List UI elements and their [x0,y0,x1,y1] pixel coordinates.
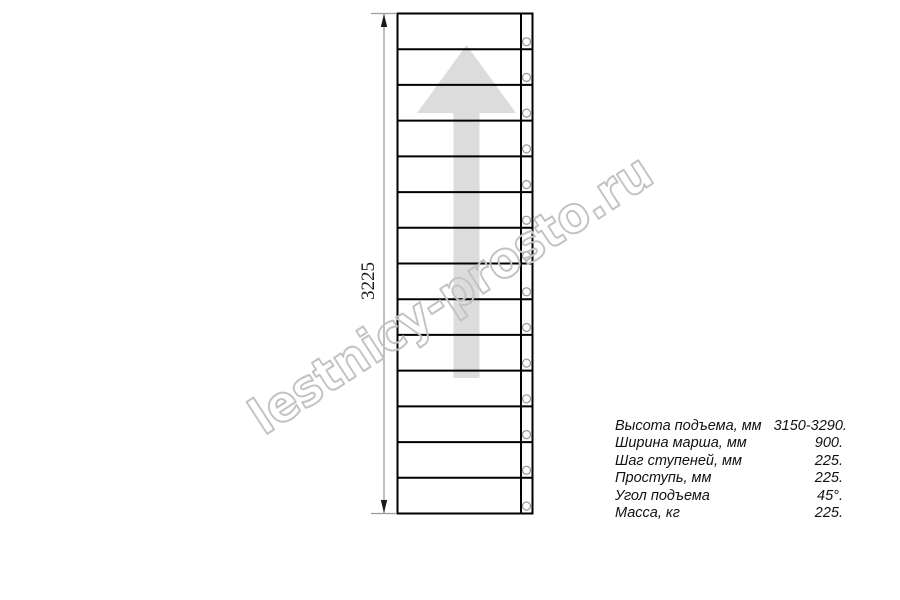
bolt-circle [523,359,531,367]
bolt-circle [523,288,531,296]
bolt-circle [523,73,531,81]
dimension: 3225 [358,14,397,514]
bolt-circle [523,502,531,510]
bolt-circle [523,431,531,439]
spec-value: 3150-3290. [774,418,847,435]
spec-value: 225. [815,453,843,470]
dimension-arrowhead-top [381,14,387,27]
spec-label: Шаг ступеней, мм [615,453,742,470]
spec-row-width: Ширина марша, мм 900. [615,435,843,452]
spec-value: 45°. [817,488,843,505]
bolt-circle [523,395,531,403]
drawing-canvas: 3225 lestnicy-prosto.ru Высота подъема, … [0,0,900,600]
bolt-circle [523,323,531,331]
dimension-label: 3225 [358,262,379,300]
spec-label: Угол подъема [615,488,710,505]
spec-value: 900. [815,435,843,452]
bolt-circle [523,38,531,46]
spec-row-tread: Проступь, мм 225. [615,470,843,487]
bolt-circle [523,466,531,474]
bolt-circle [523,181,531,189]
spec-row-angle: Угол подъема 45°. [615,488,843,505]
dimension-arrowhead-bottom [381,500,387,513]
spec-label: Масса, кг [615,505,680,522]
watermark-text: lestnicy-prosto.ru [239,143,663,447]
bolt-circle [523,145,531,153]
spec-row-height: Высота подъема, мм 3150-3290. [615,418,843,435]
spec-label: Проступь, мм [615,470,711,487]
spec-label: Высота подъема, мм [615,418,762,435]
spec-row-step: Шаг ступеней, мм 225. [615,453,843,470]
specs-table: Высота подъема, мм 3150-3290. Ширина мар… [615,418,843,522]
spec-value: 225. [815,505,843,522]
spec-value: 225. [815,470,843,487]
bolt-circle [523,109,531,117]
spec-row-mass: Масса, кг 225. [615,505,843,522]
spec-label: Ширина марша, мм [615,435,747,452]
